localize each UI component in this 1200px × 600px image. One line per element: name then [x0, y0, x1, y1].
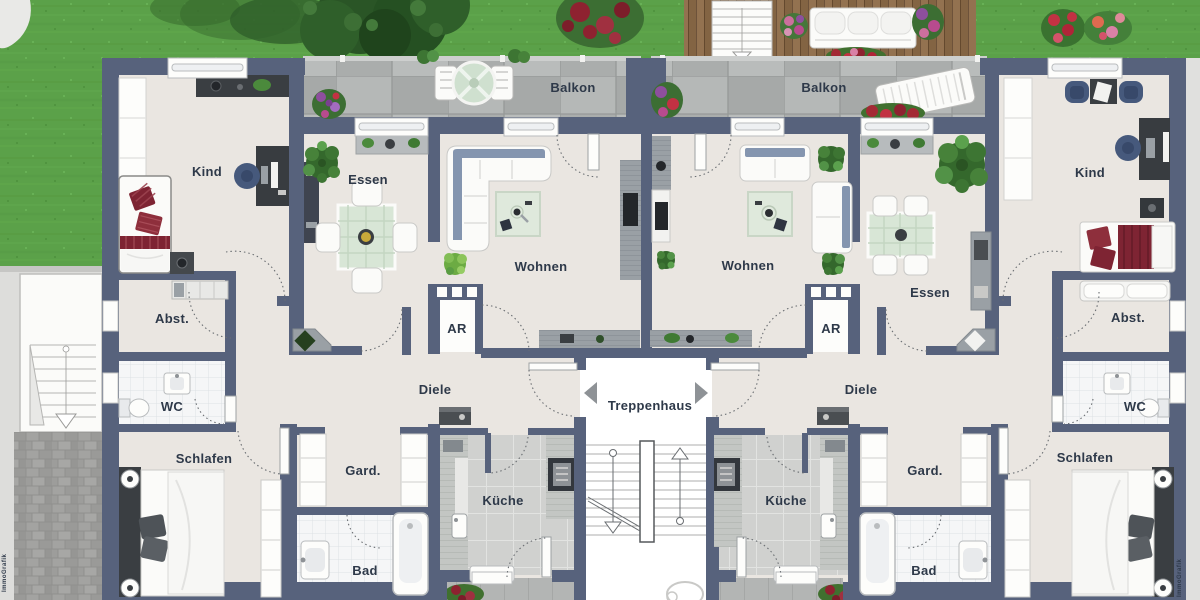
- svg-text:Balkon: Balkon: [801, 80, 846, 95]
- svg-text:Kind: Kind: [192, 164, 222, 179]
- svg-text:Schlafen: Schlafen: [176, 451, 233, 466]
- svg-text:Kind: Kind: [1075, 165, 1105, 180]
- svg-text:Essen: Essen: [348, 172, 388, 187]
- svg-text:Treppenhaus: Treppenhaus: [608, 398, 692, 413]
- svg-text:WC: WC: [1124, 399, 1147, 414]
- svg-text:Wohnen: Wohnen: [722, 258, 775, 273]
- svg-text:Abst.: Abst.: [1111, 310, 1145, 325]
- svg-text:ImmoGrafik: ImmoGrafik: [2, 553, 8, 592]
- svg-text:Gard.: Gard.: [345, 463, 380, 478]
- svg-text:Abst.: Abst.: [155, 311, 189, 326]
- svg-text:Gard.: Gard.: [907, 463, 942, 478]
- svg-text:Wohnen: Wohnen: [515, 259, 568, 274]
- svg-text:Küche: Küche: [482, 493, 523, 508]
- svg-text:Bad: Bad: [911, 563, 936, 578]
- svg-text:Diele: Diele: [419, 382, 452, 397]
- svg-text:Diele: Diele: [845, 382, 878, 397]
- svg-text:WC: WC: [161, 399, 184, 414]
- svg-text:Küche: Küche: [765, 493, 806, 508]
- svg-text:Essen: Essen: [910, 285, 950, 300]
- svg-text:Schlafen: Schlafen: [1057, 450, 1114, 465]
- svg-text:AR: AR: [447, 321, 467, 336]
- svg-text:AR: AR: [821, 321, 841, 336]
- svg-text:ImmoGrafik: ImmoGrafik: [1177, 558, 1183, 597]
- svg-text:Balkon: Balkon: [550, 80, 595, 95]
- svg-text:Bad: Bad: [352, 563, 377, 578]
